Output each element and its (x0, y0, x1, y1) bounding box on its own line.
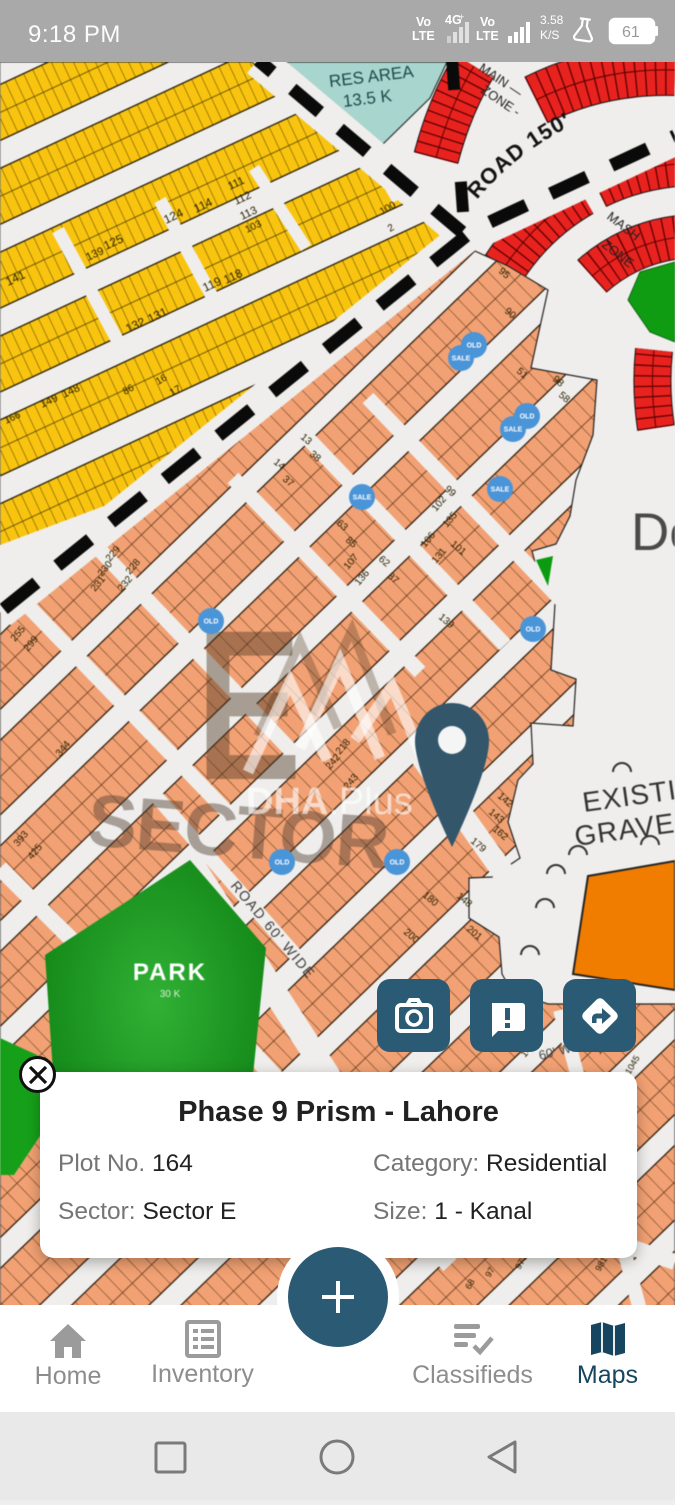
svg-text:OLD: OLD (275, 860, 290, 867)
svg-text:SALE: SALE (353, 495, 372, 502)
svg-text:Vo: Vo (416, 15, 431, 29)
svg-text:OLD: OLD (526, 627, 541, 634)
svg-text:OLD: OLD (390, 860, 405, 867)
svg-text:SALE: SALE (504, 427, 523, 434)
svg-text:30 K: 30 K (160, 989, 181, 1000)
svg-text:OLD: OLD (204, 619, 219, 626)
svg-text:DHA.Plus: DHA.Plus (246, 781, 413, 823)
svg-text:SALE: SALE (491, 487, 510, 494)
svg-text:+: + (459, 12, 464, 22)
svg-text:De: De (631, 503, 675, 562)
svg-text:61: 61 (622, 24, 640, 41)
svg-text:OLD: OLD (520, 414, 535, 421)
svg-text:LTE: LTE (476, 29, 499, 43)
svg-text:SALE: SALE (452, 356, 471, 363)
svg-text:K/S: K/S (540, 28, 559, 42)
svg-text:Vo: Vo (480, 15, 495, 29)
svg-text:3.58: 3.58 (540, 13, 564, 27)
svg-text:PARK: PARK (133, 959, 207, 986)
svg-text:LTE: LTE (412, 29, 435, 43)
